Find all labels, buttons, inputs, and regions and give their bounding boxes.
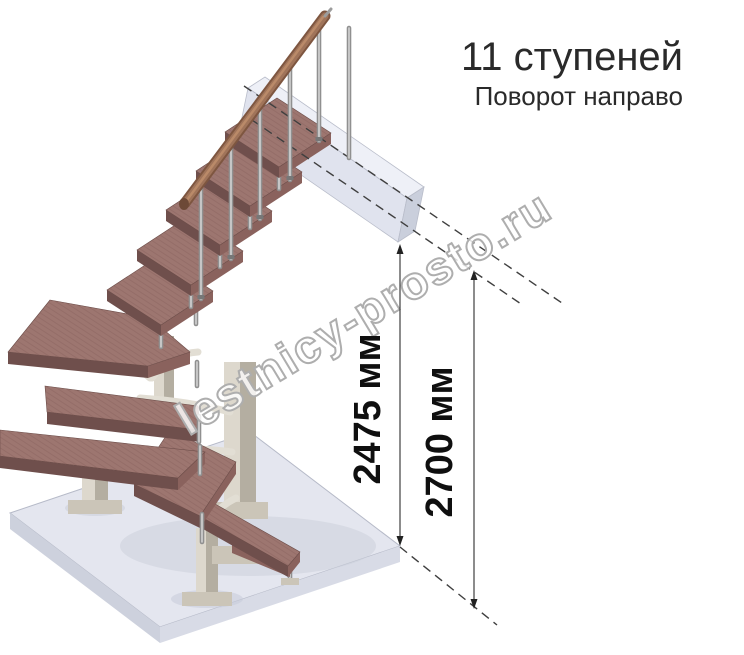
page-subtitle: Поворот направо [475, 81, 683, 111]
tube-base-plate [281, 578, 299, 585]
ground-reference-line [400, 547, 497, 625]
flight-steps [107, 98, 331, 347]
arrow-up-icon [397, 244, 404, 254]
page-title: 11 ступеней [461, 35, 683, 79]
dimension-label-stair-height: 2475 мм [347, 333, 389, 484]
front-post-base-plate [182, 592, 232, 606]
handrail-end-cap [179, 198, 189, 210]
staircase-render: lestnicy-prosto.ru 2475 мм 2700 мм 11 ст… [0, 0, 744, 655]
dimension-ceiling-height: 2700 мм [419, 270, 478, 609]
staircase-diagram: lestnicy-prosto.ru 2475 мм 2700 мм 11 ст… [0, 0, 744, 655]
dimension-label-ceiling-height: 2700 мм [419, 366, 461, 517]
left-post-base-plate [68, 500, 122, 514]
